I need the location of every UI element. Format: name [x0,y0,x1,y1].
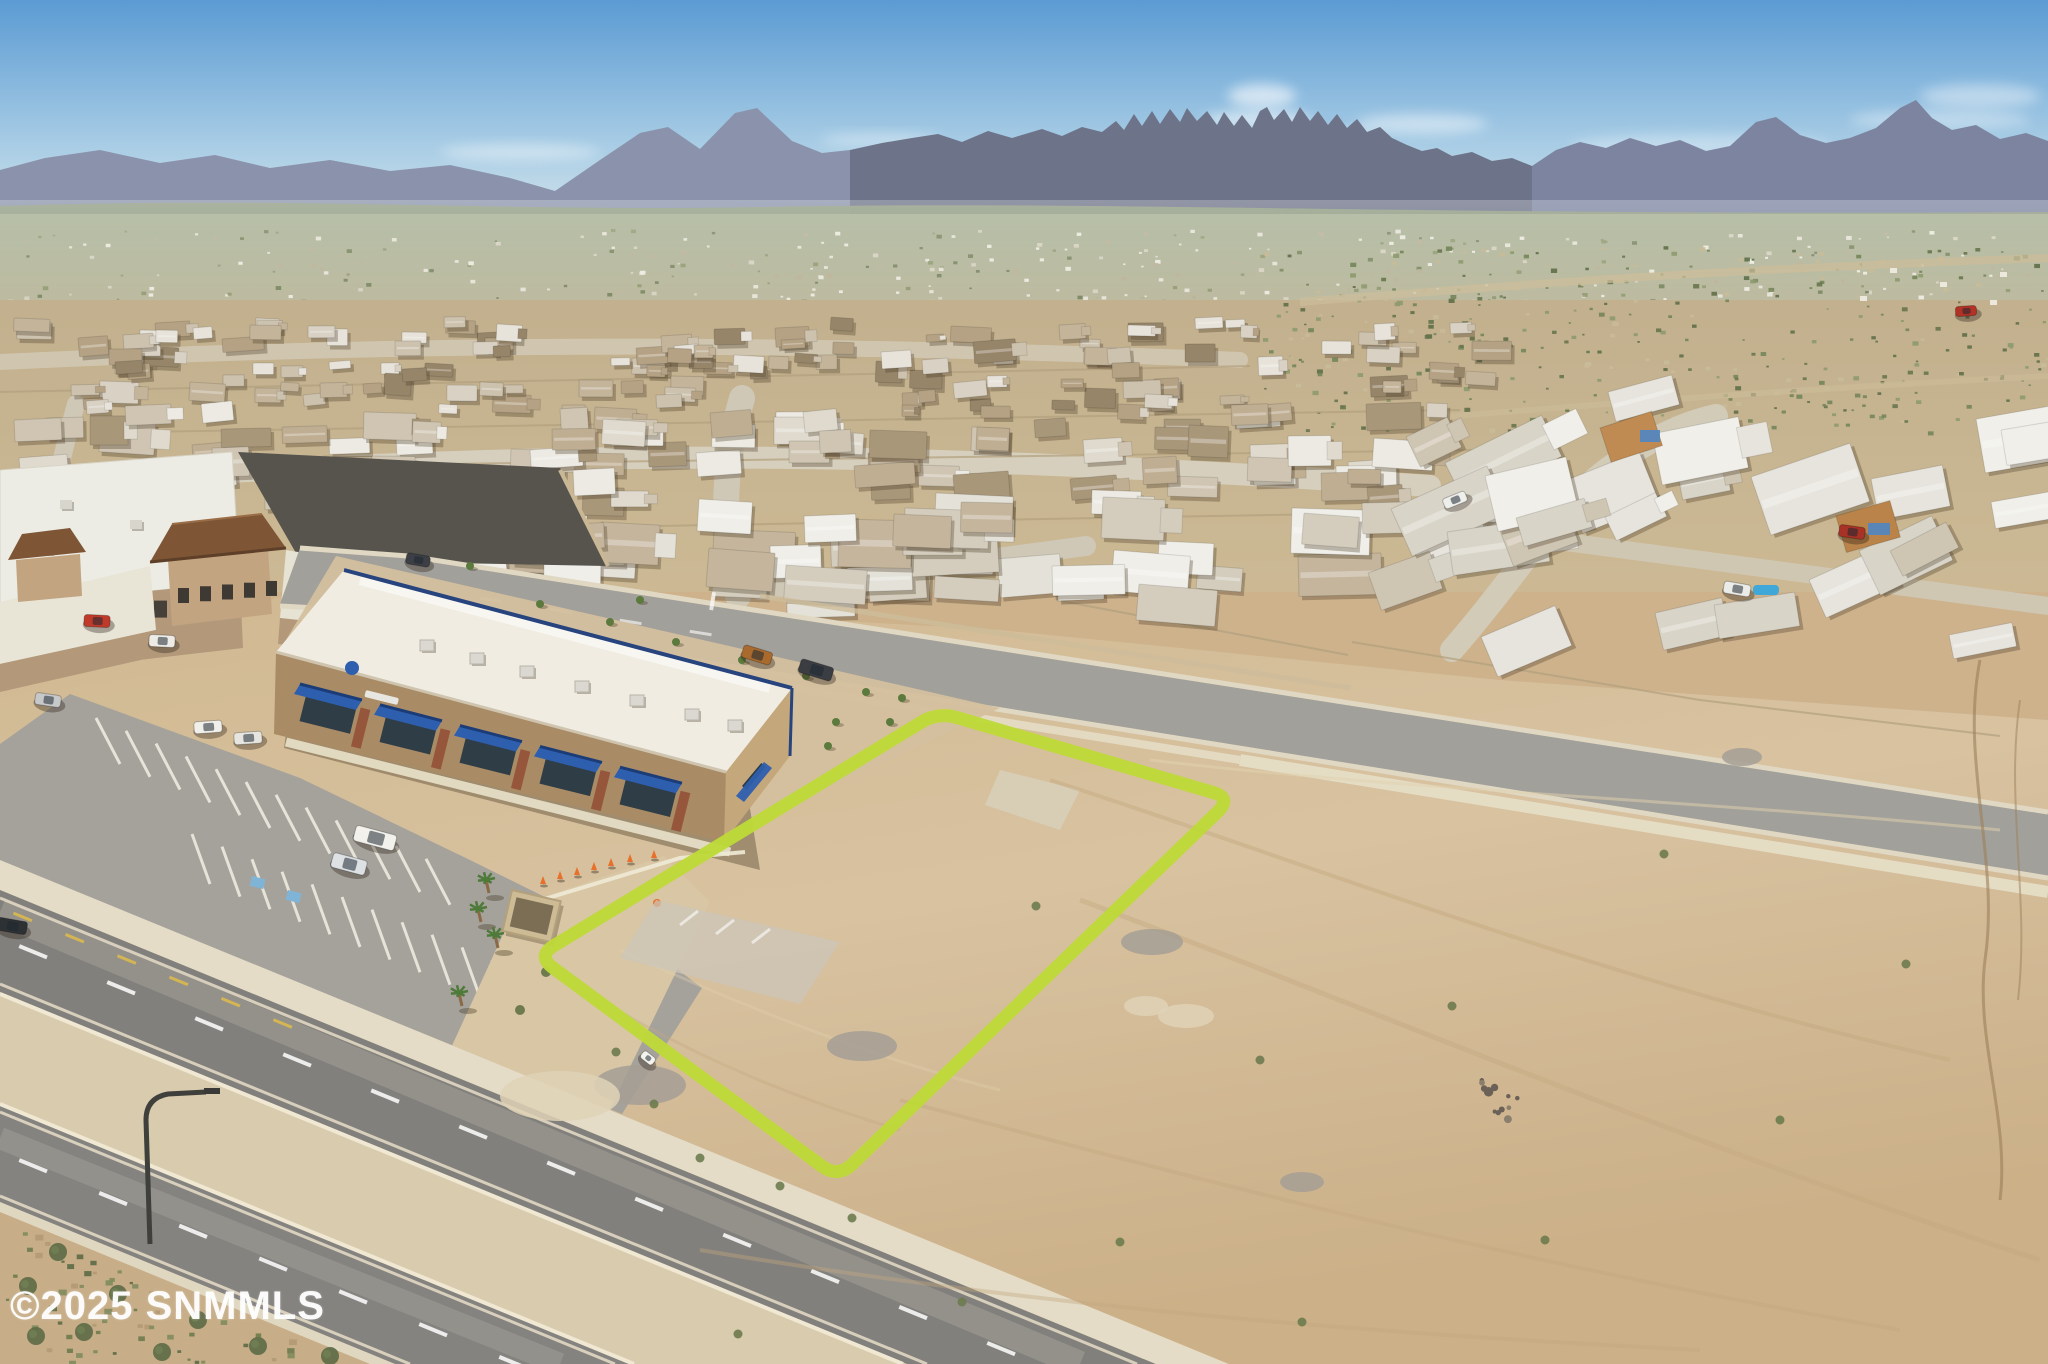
house [869,430,930,464]
house [768,356,791,374]
house [250,325,285,344]
house [1258,356,1288,380]
house [282,425,331,447]
house [714,328,752,349]
house [1142,456,1181,489]
house [1185,344,1218,366]
house [1034,418,1070,442]
house [694,345,716,362]
house [201,400,237,427]
house [794,353,822,368]
house [329,360,354,374]
house [1084,388,1119,413]
house [601,419,649,451]
house [223,375,247,391]
house [987,375,1010,391]
house [696,449,745,480]
house [253,363,277,378]
house [1472,341,1515,364]
house [1052,564,1128,600]
house [697,499,756,538]
house [819,429,855,457]
house [479,382,506,401]
house [1231,404,1272,430]
house [656,394,685,412]
house [1348,469,1384,488]
house [881,350,915,373]
house [976,427,1013,455]
watermark: ©2025 SNMMLS [10,1284,325,1329]
house [804,514,860,547]
house [1136,584,1221,631]
house [1714,592,1804,643]
house [504,385,526,397]
house [1112,362,1143,382]
house [647,365,669,381]
house [1059,323,1091,344]
house [710,409,756,442]
house [1383,381,1405,397]
house [1195,317,1226,333]
house [281,366,307,382]
house [573,468,619,500]
house [1188,425,1232,462]
house [280,382,302,396]
house [1949,622,2020,663]
house [447,385,480,405]
house [854,461,919,492]
house [611,357,633,369]
house [320,382,353,402]
house [922,358,952,379]
house [444,316,469,331]
house [933,576,1002,606]
house [86,399,113,418]
house [960,502,1016,537]
house [1128,325,1162,340]
house [892,514,954,553]
house [1301,513,1362,553]
house [1083,437,1133,468]
house [438,404,460,418]
house [14,418,65,446]
house [1450,322,1476,338]
aerial-photo: ©2025 SNMMLS [0,0,2048,1364]
house [402,367,430,385]
house [395,341,424,360]
house [781,339,809,354]
house [1465,371,1499,390]
house [13,318,53,337]
house [830,317,857,336]
house [1366,402,1425,435]
house [706,548,779,596]
scene-canvas [0,0,2048,1364]
house [667,348,695,368]
house [981,406,1013,422]
house [496,324,528,346]
house [579,380,616,401]
house [1061,379,1086,392]
house [552,428,599,454]
house [308,326,338,342]
house [115,360,146,378]
house [973,338,1028,368]
house [71,384,106,400]
house [1322,341,1354,358]
house [953,379,991,402]
house [156,330,181,347]
house [621,380,647,398]
house [1052,400,1078,414]
house [78,335,112,360]
